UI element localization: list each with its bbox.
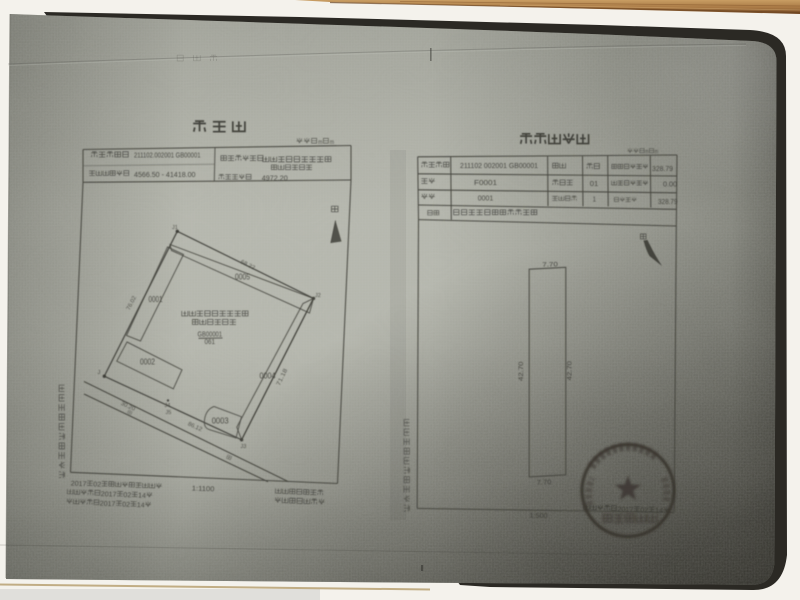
svg-text:m: m	[655, 149, 659, 156]
svg-text:J: J	[98, 370, 101, 376]
svg-text:328.79: 328.79	[652, 166, 673, 173]
svg-text:m: m	[318, 139, 322, 146]
svg-text:0005: 0005	[235, 272, 250, 282]
svg-text:7.70: 7.70	[537, 479, 552, 487]
svg-text:4972.20: 4972.20	[262, 175, 288, 183]
svg-text:14: 14	[138, 493, 146, 500]
svg-text:211102.002001 GB00001: 211102.002001 GB00001	[134, 152, 201, 160]
svg-text:02: 02	[93, 481, 101, 488]
svg-text:0.00: 0.00	[663, 182, 677, 189]
svg-text:7.70: 7.70	[542, 261, 558, 269]
svg-text:0001: 0001	[149, 295, 163, 304]
svg-text:02: 02	[123, 492, 131, 499]
svg-text:0003: 0003	[212, 416, 230, 425]
svg-text:211102 002001 GB00001: 211102 002001 GB00001	[460, 163, 538, 170]
svg-text:0004: 0004	[260, 372, 277, 381]
svg-text:GB00001: GB00001	[198, 329, 223, 338]
svg-text:42.70: 42.70	[518, 361, 525, 381]
svg-text:F0001: F0001	[474, 180, 497, 187]
svg-text:2017: 2017	[101, 491, 117, 499]
svg-text:m: m	[330, 139, 334, 146]
svg-text:4566.50 - 41418.00: 4566.50 - 41418.00	[134, 171, 196, 179]
svg-text:328.79: 328.79	[658, 199, 678, 206]
svg-text:J4: J4	[165, 403, 171, 409]
svg-text:02: 02	[122, 501, 130, 508]
svg-text:2017: 2017	[71, 481, 87, 489]
svg-text:02: 02	[640, 507, 648, 514]
svg-text:0001: 0001	[478, 195, 494, 202]
svg-text:14: 14	[137, 502, 145, 509]
svg-text:01: 01	[590, 181, 599, 188]
svg-text:J2: J2	[315, 293, 321, 299]
svg-text:1: 1	[593, 197, 596, 204]
svg-text:0002: 0002	[140, 358, 155, 367]
svg-text:14: 14	[655, 508, 663, 515]
svg-text:J1: J1	[172, 225, 178, 231]
svg-text:1:1100: 1:1100	[192, 486, 215, 494]
svg-text:061: 061	[205, 339, 216, 346]
svg-text:J3: J3	[241, 444, 247, 450]
svg-text:2017: 2017	[617, 506, 633, 514]
svg-text:J5: J5	[166, 410, 172, 416]
svg-text:m: m	[645, 149, 649, 156]
svg-text:1:500: 1:500	[529, 513, 547, 520]
svg-text:42.70: 42.70	[567, 360, 574, 380]
svg-text:2017: 2017	[100, 501, 116, 509]
